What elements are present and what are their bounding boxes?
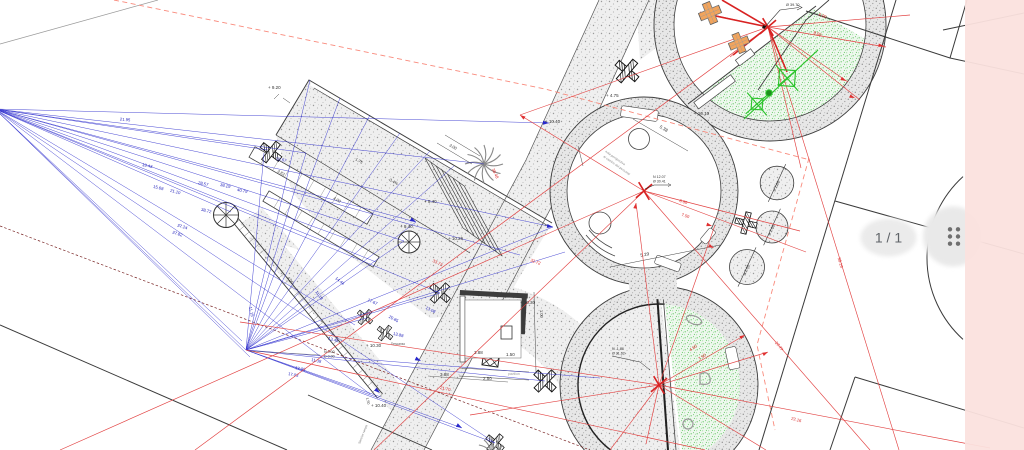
svg-text:1 / 1: 1 / 1 (875, 230, 902, 246)
svg-text:+ 9.40: + 9.40 (400, 224, 413, 229)
svg-text:21.95: 21.95 (120, 117, 132, 123)
svg-text:Descanso: Descanso (391, 342, 405, 346)
svg-text:1.00: 1.00 (539, 310, 544, 319)
svg-text:3.88: 3.88 (440, 372, 449, 377)
svg-text:Ø 30.41: Ø 30.41 (653, 180, 666, 184)
svg-text:1.50: 1.50 (506, 352, 515, 357)
svg-text:N -1.88: N -1.88 (612, 347, 624, 351)
svg-text:+ 10.30: + 10.30 (366, 343, 382, 348)
svg-text:+ 9.20: + 9.20 (268, 85, 281, 90)
svg-text:+ 10.40: + 10.40 (371, 403, 387, 408)
svg-text:N 0.00: N 0.00 (324, 350, 335, 354)
svg-text:pavilion: pavilion (508, 372, 520, 376)
svg-text:+ 10.26: + 10.26 (448, 236, 464, 241)
svg-text:+ 10.10: + 10.10 (694, 111, 710, 116)
svg-text:+ 4.75: + 4.75 (606, 93, 619, 98)
svg-text:Ø 31.62: Ø 31.62 (612, 352, 625, 356)
svg-text:+ 9.40: + 9.40 (424, 199, 437, 204)
svg-text:+ 10.40: + 10.40 (545, 119, 561, 124)
svg-text:N 12.07: N 12.07 (653, 175, 666, 179)
svg-text:+ 10.30: + 10.30 (520, 300, 536, 305)
svg-text:D 0.00: D 0.00 (324, 355, 335, 359)
